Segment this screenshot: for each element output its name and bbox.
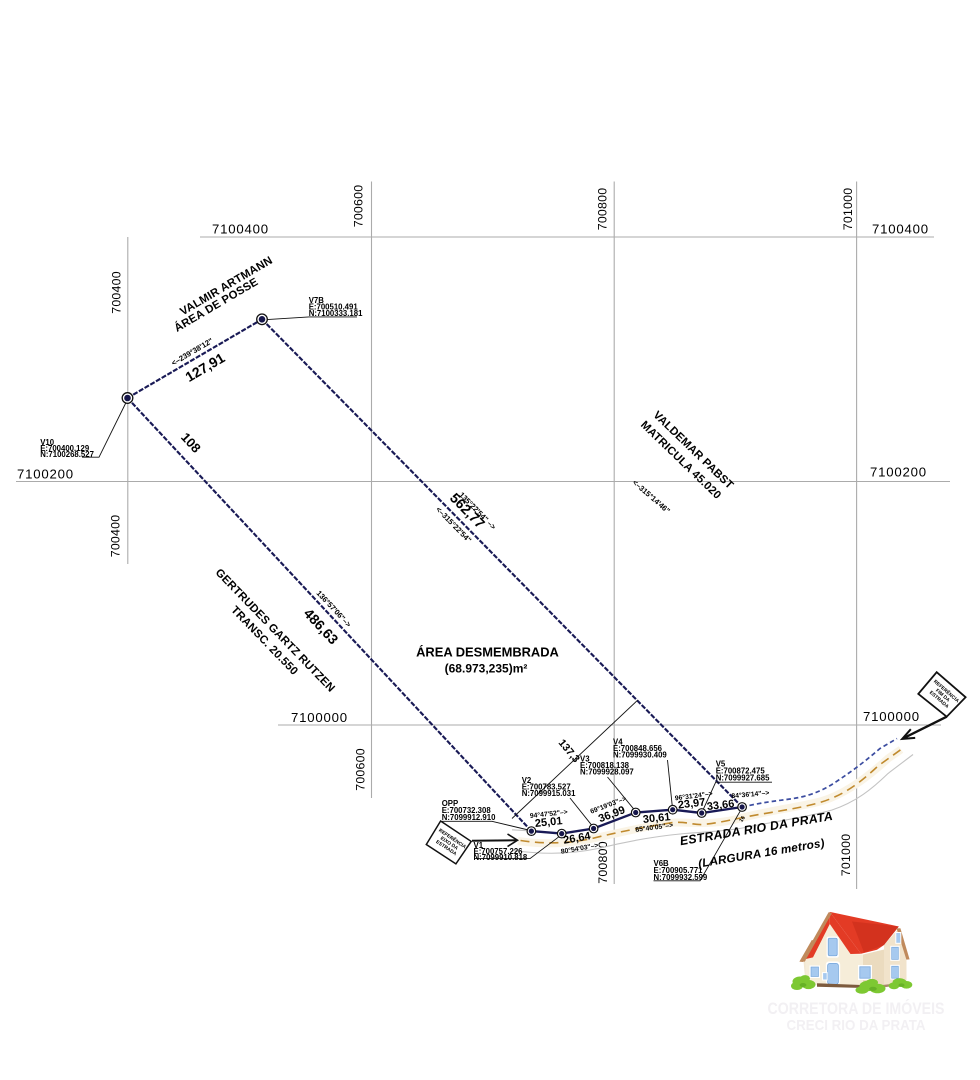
svg-text:N:7099915.031: N:7099915.031 <box>522 789 576 798</box>
svg-text:N:7099912.910: N:7099912.910 <box>442 813 496 822</box>
svg-text:N:7099927.685: N:7099927.685 <box>716 774 770 783</box>
svg-text:N:7099932.599: N:7099932.599 <box>654 873 708 882</box>
svg-text:700800: 700800 <box>596 188 610 231</box>
svg-text:CRECI RIO DA PRATA: CRECI RIO DA PRATA <box>787 1017 926 1034</box>
svg-text:7100200: 7100200 <box>17 467 74 482</box>
svg-text:N:7100333.181: N:7100333.181 <box>309 309 363 318</box>
svg-text:7100000: 7100000 <box>863 709 920 724</box>
svg-text:ÁREA DESMEMBRADA: ÁREA DESMEMBRADA <box>416 645 559 660</box>
svg-text:(68.973,235)m²: (68.973,235)m² <box>445 662 528 676</box>
svg-text:700600: 700600 <box>354 748 368 791</box>
svg-text:700600: 700600 <box>352 185 366 228</box>
svg-text:7100200: 7100200 <box>870 465 927 480</box>
svg-text:700400: 700400 <box>109 515 123 558</box>
svg-text:N:7099910.818: N:7099910.818 <box>474 853 528 862</box>
svg-text:701000: 701000 <box>839 834 853 877</box>
svg-text:701000: 701000 <box>841 188 855 231</box>
svg-text:7100400: 7100400 <box>872 222 929 237</box>
svg-text:CORRETORA DE IMÓVEIS: CORRETORA DE IMÓVEIS <box>768 999 945 1018</box>
svg-text:700400: 700400 <box>110 271 124 314</box>
svg-text:N:7099930.409: N:7099930.409 <box>613 751 667 760</box>
svg-text:7100400: 7100400 <box>212 222 269 237</box>
svg-text:N:7100268.527: N:7100268.527 <box>40 450 94 459</box>
svg-text:7100000: 7100000 <box>291 710 348 725</box>
svg-text:N:7099928.097: N:7099928.097 <box>580 768 634 777</box>
